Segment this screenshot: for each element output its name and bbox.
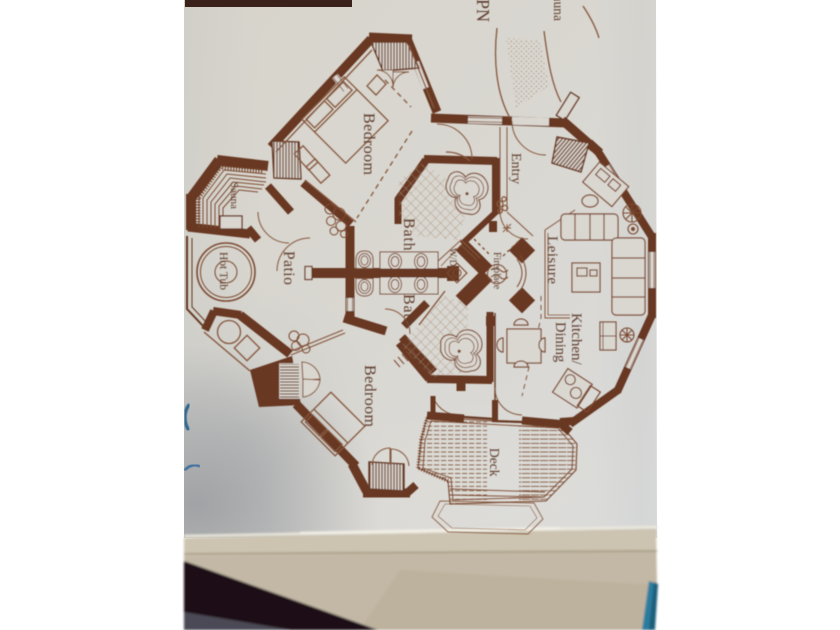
svg-text:PN: PN	[473, 0, 493, 22]
svg-text:Dining: Dining	[552, 322, 568, 362]
svg-text:Fireplace: Fireplace	[491, 252, 502, 290]
svg-text:W/D: W/D	[447, 248, 457, 267]
svg-text:Sauna: Sauna	[551, 0, 566, 21]
svg-text:Entry: Entry	[508, 153, 523, 184]
svg-text:Kitchen/: Kitchen/	[568, 313, 584, 365]
svg-text:Bedroom: Bedroom	[361, 365, 378, 428]
svg-text:Sauna: Sauna	[228, 182, 240, 209]
svg-text:Deck: Deck	[487, 448, 502, 477]
svg-text:Bedroom: Bedroom	[360, 113, 377, 176]
svg-text:Patio: Patio	[280, 251, 297, 285]
svg-text:Hot Tub: Hot Tub	[217, 252, 229, 290]
svg-text:Bath: Bath	[400, 294, 417, 327]
svg-text:Leisure: Leisure	[544, 236, 560, 284]
svg-text:Bath: Bath	[400, 218, 417, 251]
